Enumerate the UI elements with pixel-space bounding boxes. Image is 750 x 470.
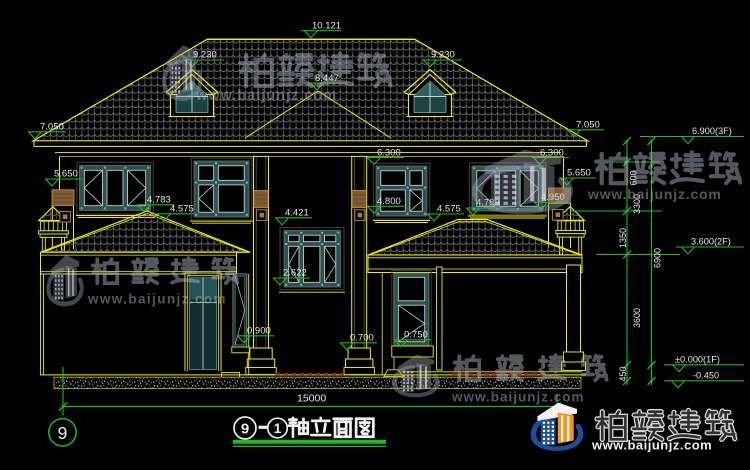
svg-text:3.600(2F): 3.600(2F) xyxy=(691,237,731,247)
svg-text:10.121: 10.121 xyxy=(312,21,341,32)
svg-text:0.750: 0.750 xyxy=(404,330,428,341)
svg-text:4.575: 4.575 xyxy=(437,204,461,215)
svg-text:±0.000(1F): ±0.000(1F) xyxy=(675,355,720,365)
svg-text:0.700: 0.700 xyxy=(350,333,374,344)
svg-text:6.300: 6.300 xyxy=(377,148,401,159)
svg-text:5.650: 5.650 xyxy=(567,168,591,179)
svg-text:www.baijunjz.com: www.baijunjz.com xyxy=(451,390,585,405)
svg-text:3600: 3600 xyxy=(632,308,642,328)
svg-text:1: 1 xyxy=(274,420,282,436)
svg-text:4.800: 4.800 xyxy=(377,196,401,207)
svg-text:www.baijunjz.com: www.baijunjz.com xyxy=(87,292,227,307)
svg-text:7.050: 7.050 xyxy=(40,122,64,133)
svg-text:www.baijunjz.com: www.baijunjz.com xyxy=(591,438,712,453)
svg-text:-0.450: -0.450 xyxy=(693,371,719,381)
svg-text:5.650: 5.650 xyxy=(54,169,78,180)
svg-text:6900: 6900 xyxy=(653,248,663,268)
svg-text:7.050: 7.050 xyxy=(576,120,600,131)
svg-text:www.baijunjz.com: www.baijunjz.com xyxy=(587,186,722,202)
svg-text:6.900(3F): 6.900(3F) xyxy=(692,126,732,136)
svg-text:4.575: 4.575 xyxy=(170,204,194,215)
svg-text:2.622: 2.622 xyxy=(283,268,307,279)
svg-text:9: 9 xyxy=(241,421,249,438)
svg-text:450: 450 xyxy=(618,366,628,381)
svg-text:www.baijunjz.com: www.baijunjz.com xyxy=(195,88,337,104)
svg-text:0.900: 0.900 xyxy=(247,326,271,337)
svg-text:15000: 15000 xyxy=(297,393,326,405)
svg-text:9.230: 9.230 xyxy=(431,50,455,61)
svg-text:1350: 1350 xyxy=(618,228,628,248)
svg-text:4.421: 4.421 xyxy=(285,208,309,219)
svg-text:4.783: 4.783 xyxy=(147,195,171,206)
svg-text:9: 9 xyxy=(58,423,68,443)
